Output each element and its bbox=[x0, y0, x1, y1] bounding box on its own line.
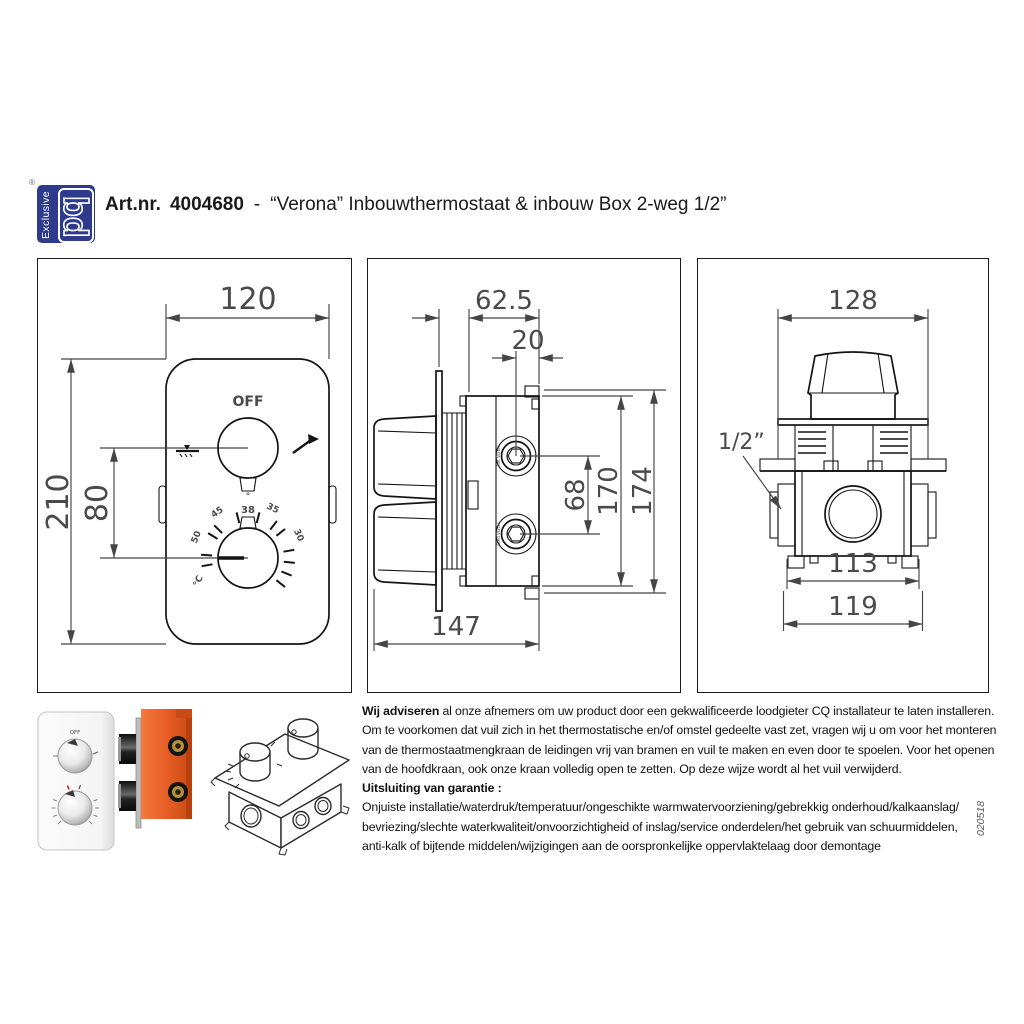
isometric-drawing bbox=[203, 698, 355, 860]
svg-text:80: 80 bbox=[80, 484, 115, 522]
svg-text:68: 68 bbox=[561, 478, 591, 511]
front-view-drawing: 120 210 80 OFF bbox=[38, 259, 351, 692]
photo-port-bottom bbox=[168, 782, 188, 802]
artnr-label: Art.nr. bbox=[105, 194, 161, 215]
photo-orange-box bbox=[141, 709, 192, 819]
thermostat-knob bbox=[218, 517, 278, 588]
advice-line-2: Om te voorkomen dat vuil zich in het the… bbox=[362, 721, 990, 740]
cold-water-label: Cold Water bbox=[496, 522, 501, 545]
footer-notes: Wij adviseren al onze afnemers om uw pro… bbox=[362, 702, 990, 856]
svg-text:174: 174 bbox=[628, 466, 658, 516]
artnr-value: 4004680 bbox=[170, 194, 244, 215]
page-title: Art.nr.4004680-“Verona” Inbouwthermostaa… bbox=[105, 194, 727, 216]
knobs-side-profile bbox=[374, 416, 436, 585]
photo-knob-stem-top bbox=[119, 734, 136, 764]
svg-text:62.5: 62.5 bbox=[475, 286, 533, 316]
off-label: OFF bbox=[232, 394, 263, 410]
warranty-line-2: bevriezing/slechte waterkwaliteit/onvoor… bbox=[362, 818, 990, 837]
svg-text:50: 50 bbox=[190, 530, 204, 545]
hot-water-label: Hot Water bbox=[496, 445, 501, 466]
logo-monogram: bd bbox=[55, 196, 95, 232]
side-view-panel: Hot Water Cold Water 62.5 20 68 170 bbox=[367, 258, 681, 693]
svg-text:35: 35 bbox=[265, 502, 281, 516]
advice-line-4: van de hoofdkraan, ook onze kraan volled… bbox=[362, 760, 990, 779]
inbouw-box-body bbox=[460, 386, 539, 599]
temperature-scale-ticks bbox=[201, 512, 295, 587]
photo-inbouw-box-side bbox=[118, 704, 196, 836]
svg-text:20: 20 bbox=[511, 326, 544, 356]
title-text: “Verona” Inbouwthermostaat & inbouw Box … bbox=[270, 194, 726, 215]
photo-off-label: OFF bbox=[70, 730, 81, 736]
svg-text:210: 210 bbox=[41, 473, 76, 530]
mounting-plate bbox=[436, 371, 466, 611]
upper-body bbox=[760, 425, 946, 471]
warranty-line-1: Onjuiste installatie/waterdruk/temperatu… bbox=[362, 798, 990, 817]
svg-text:38: 38 bbox=[241, 505, 255, 516]
dim-113: 113 bbox=[787, 549, 919, 589]
photo-front-plate: OFF bbox=[35, 710, 117, 852]
registered-trademark: ® bbox=[29, 178, 35, 187]
front-view-panel: 120 210 80 OFF bbox=[37, 258, 352, 693]
svg-text:120: 120 bbox=[219, 282, 276, 317]
svg-text:119: 119 bbox=[828, 592, 878, 622]
back-view-panel: 128 1/2” 113 119 bbox=[697, 258, 989, 693]
shower-icon bbox=[176, 445, 199, 457]
diverter-knob: OFF bbox=[218, 394, 278, 491]
warranty-line-3: anti-kalk of bijtende middelen/wijziging… bbox=[362, 837, 990, 856]
dim-147: 147 bbox=[374, 589, 539, 651]
back-view-drawing: 128 1/2” 113 119 bbox=[698, 259, 988, 692]
plate-bar bbox=[778, 419, 928, 425]
document-code: 020518 bbox=[975, 801, 987, 836]
dim-20: 20 bbox=[492, 326, 563, 456]
dim-128: 128 bbox=[778, 286, 928, 459]
dim-120: 120 bbox=[166, 282, 329, 359]
photo-port-top bbox=[168, 736, 188, 756]
advice-line-3: van de thermostaatmengkraan de leidingen… bbox=[362, 741, 990, 760]
photo-wall-plate bbox=[136, 718, 141, 828]
title-separator: - bbox=[254, 194, 260, 215]
knob-end-view bbox=[808, 352, 898, 419]
svg-text:30: 30 bbox=[291, 528, 305, 544]
svg-text:45: 45 bbox=[210, 505, 226, 520]
warranty-title: Uitsluiting van garantie : bbox=[362, 779, 990, 798]
svg-text:128: 128 bbox=[828, 286, 878, 316]
dim-119: 119 bbox=[784, 591, 923, 631]
svg-text:147: 147 bbox=[431, 612, 481, 642]
svg-text:113: 113 bbox=[828, 549, 878, 579]
side-view-drawing: Hot Water Cold Water 62.5 20 68 170 bbox=[368, 259, 680, 692]
photo-knob-stem-bottom bbox=[119, 781, 136, 811]
bath-spout-icon bbox=[293, 434, 319, 453]
advice-line-1: Wij adviseren al onze afnemers om uw pro… bbox=[362, 702, 990, 721]
connection-callout: 1/2” bbox=[718, 430, 781, 509]
brand-logo: bd Exclusive bbox=[37, 185, 95, 243]
connection-size-label: 1/2” bbox=[718, 430, 765, 455]
logo-exclusive-label: Exclusive bbox=[40, 189, 52, 241]
svg-text:°C: °C bbox=[192, 574, 206, 589]
svg-text:170: 170 bbox=[594, 466, 624, 516]
svg-text:°: ° bbox=[246, 492, 251, 502]
